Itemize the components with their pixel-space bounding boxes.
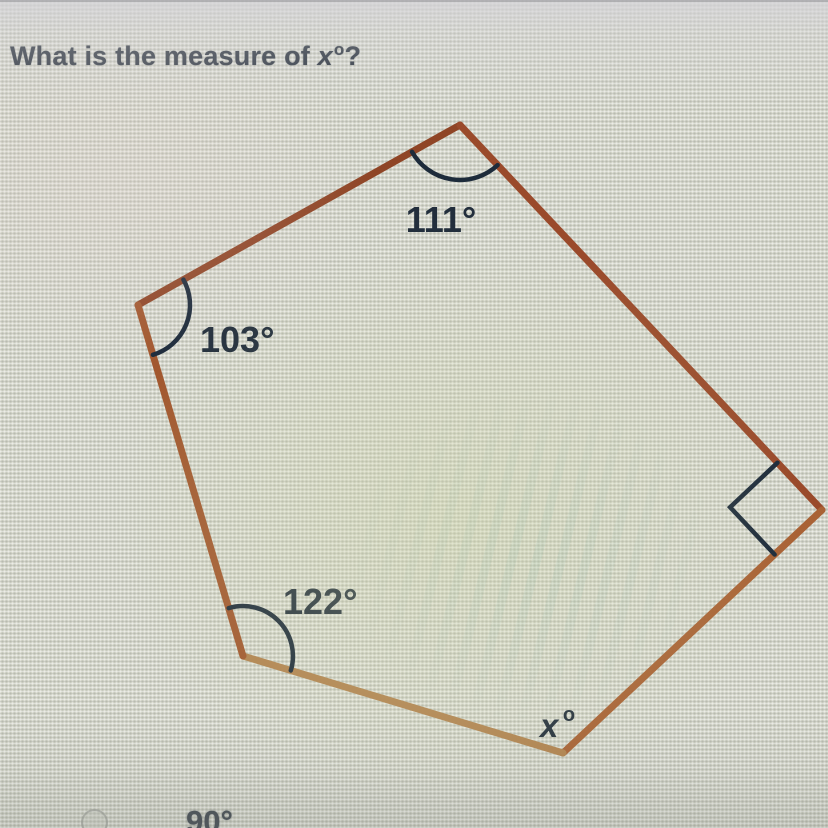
angle-label-top: 111° [406, 199, 477, 240]
answer-option-row[interactable]: 90° [0, 804, 828, 828]
angle-label-x: x o [538, 704, 575, 744]
angle-label-x-variable: x [538, 707, 560, 744]
pentagon-edge-bottom-right [563, 510, 822, 753]
answer-option-label[interactable]: 90° [186, 804, 233, 828]
angle-label-x-superscript: o [563, 704, 575, 726]
angle-label-left: 103° [200, 319, 274, 360]
pentagon-diagram: 111° 103° 122° x o [0, 0, 828, 828]
quiz-screenshot: What is the measure of xo? 111° 103° 122… [0, 0, 828, 828]
answer-radio-button[interactable] [81, 809, 108, 828]
pentagon-edge-top-right [460, 125, 822, 510]
right-angle-marker-icon [730, 463, 777, 555]
angle-label-bottom-left: 122° [283, 581, 357, 622]
